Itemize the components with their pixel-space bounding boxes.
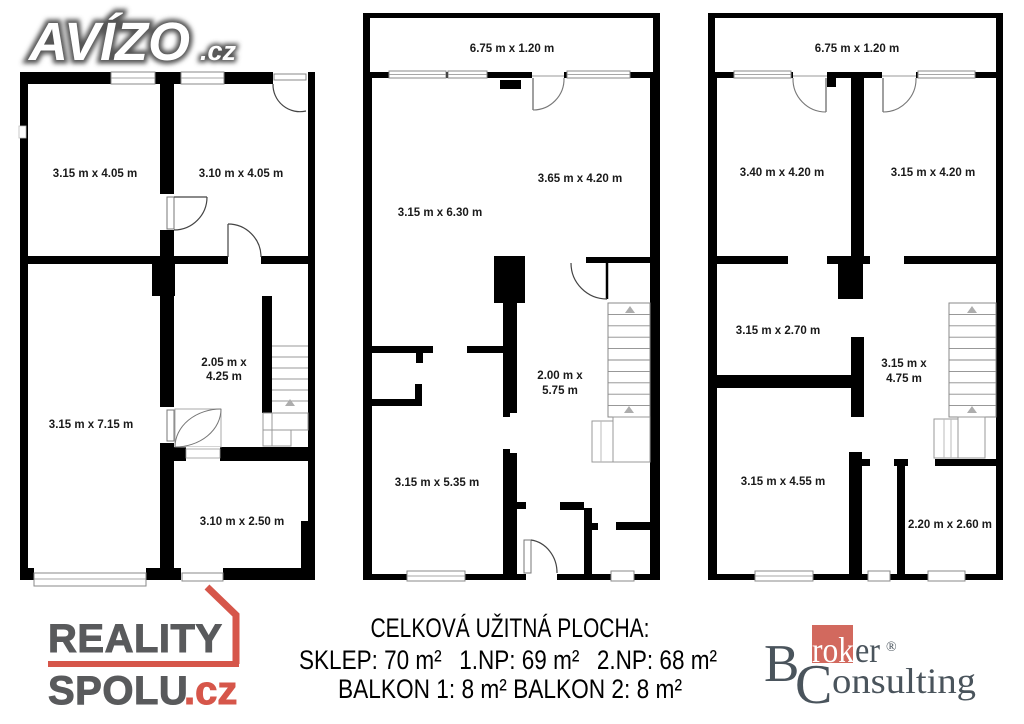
- svg-text:.cz: .cz: [184, 669, 237, 713]
- svg-text:3.15 m x 4.05 m: 3.15 m x 4.05 m: [53, 168, 137, 180]
- svg-text:4.75 m: 4.75 m: [886, 373, 922, 385]
- svg-text:AVÍZO: AVÍZO: [27, 12, 190, 72]
- svg-text:3.15 m x 5.35 m: 3.15 m x 5.35 m: [395, 477, 479, 489]
- svg-text:3.40 m x 4.20 m: 3.40 m x 4.20 m: [740, 167, 824, 179]
- svg-text:2.00 m x: 2.00 m x: [537, 370, 583, 382]
- svg-text:3.15 m x: 3.15 m x: [881, 358, 927, 370]
- svg-text:3.10 m x 2.50 m: 3.10 m x 2.50 m: [200, 516, 284, 528]
- svg-text:®: ®: [886, 640, 897, 655]
- svg-text:3.65 m x 4.20 m: 3.65 m x 4.20 m: [538, 173, 622, 185]
- svg-text:2.05 m x: 2.05 m x: [201, 357, 247, 369]
- svg-text:3.10 m x 4.05 m: 3.10 m x 4.05 m: [199, 168, 283, 180]
- svg-text:3.15 m x 4.55 m: 3.15 m x 4.55 m: [741, 476, 825, 488]
- svg-text:6.75 m x 1.20 m: 6.75 m x 1.20 m: [470, 43, 554, 55]
- svg-text:4.25 m: 4.25 m: [206, 371, 242, 383]
- svg-text:CELKOVÁ UŽITNÁ PLOCHA:: CELKOVÁ UŽITNÁ PLOCHA:: [371, 612, 650, 643]
- svg-text:3.15 m x 6.30 m: 3.15 m x 6.30 m: [398, 207, 482, 219]
- svg-text:3.15 m x 2.70 m: 3.15 m x 2.70 m: [736, 325, 820, 337]
- svg-text:3.15 m x 4.20 m: 3.15 m x 4.20 m: [891, 167, 975, 179]
- svg-text:SPOLU: SPOLU: [48, 669, 188, 713]
- svg-text:.cz: .cz: [200, 36, 237, 66]
- svg-text:REALITY: REALITY: [48, 617, 223, 661]
- svg-text:C: C: [795, 654, 832, 716]
- svg-text:5.75 m: 5.75 m: [542, 385, 578, 397]
- svg-text:3.15 m x 7.15 m: 3.15 m x 7.15 m: [49, 419, 133, 431]
- svg-text:BALKON 1: 8 m² BALKON 2: 8 m²: BALKON 1: 8 m² BALKON 2: 8 m²: [338, 674, 682, 704]
- svg-text:6.75 m x 1.20 m: 6.75 m x 1.20 m: [815, 43, 899, 55]
- svg-text:onsulting: onsulting: [832, 661, 976, 701]
- svg-text:SKLEP: 70 m² 1.NP: 69 m² 2.N: SKLEP: 70 m² 1.NP: 69 m² 2.NP: 68 m²: [299, 645, 717, 675]
- svg-text:2.20 m x 2.60 m: 2.20 m x 2.60 m: [908, 519, 992, 531]
